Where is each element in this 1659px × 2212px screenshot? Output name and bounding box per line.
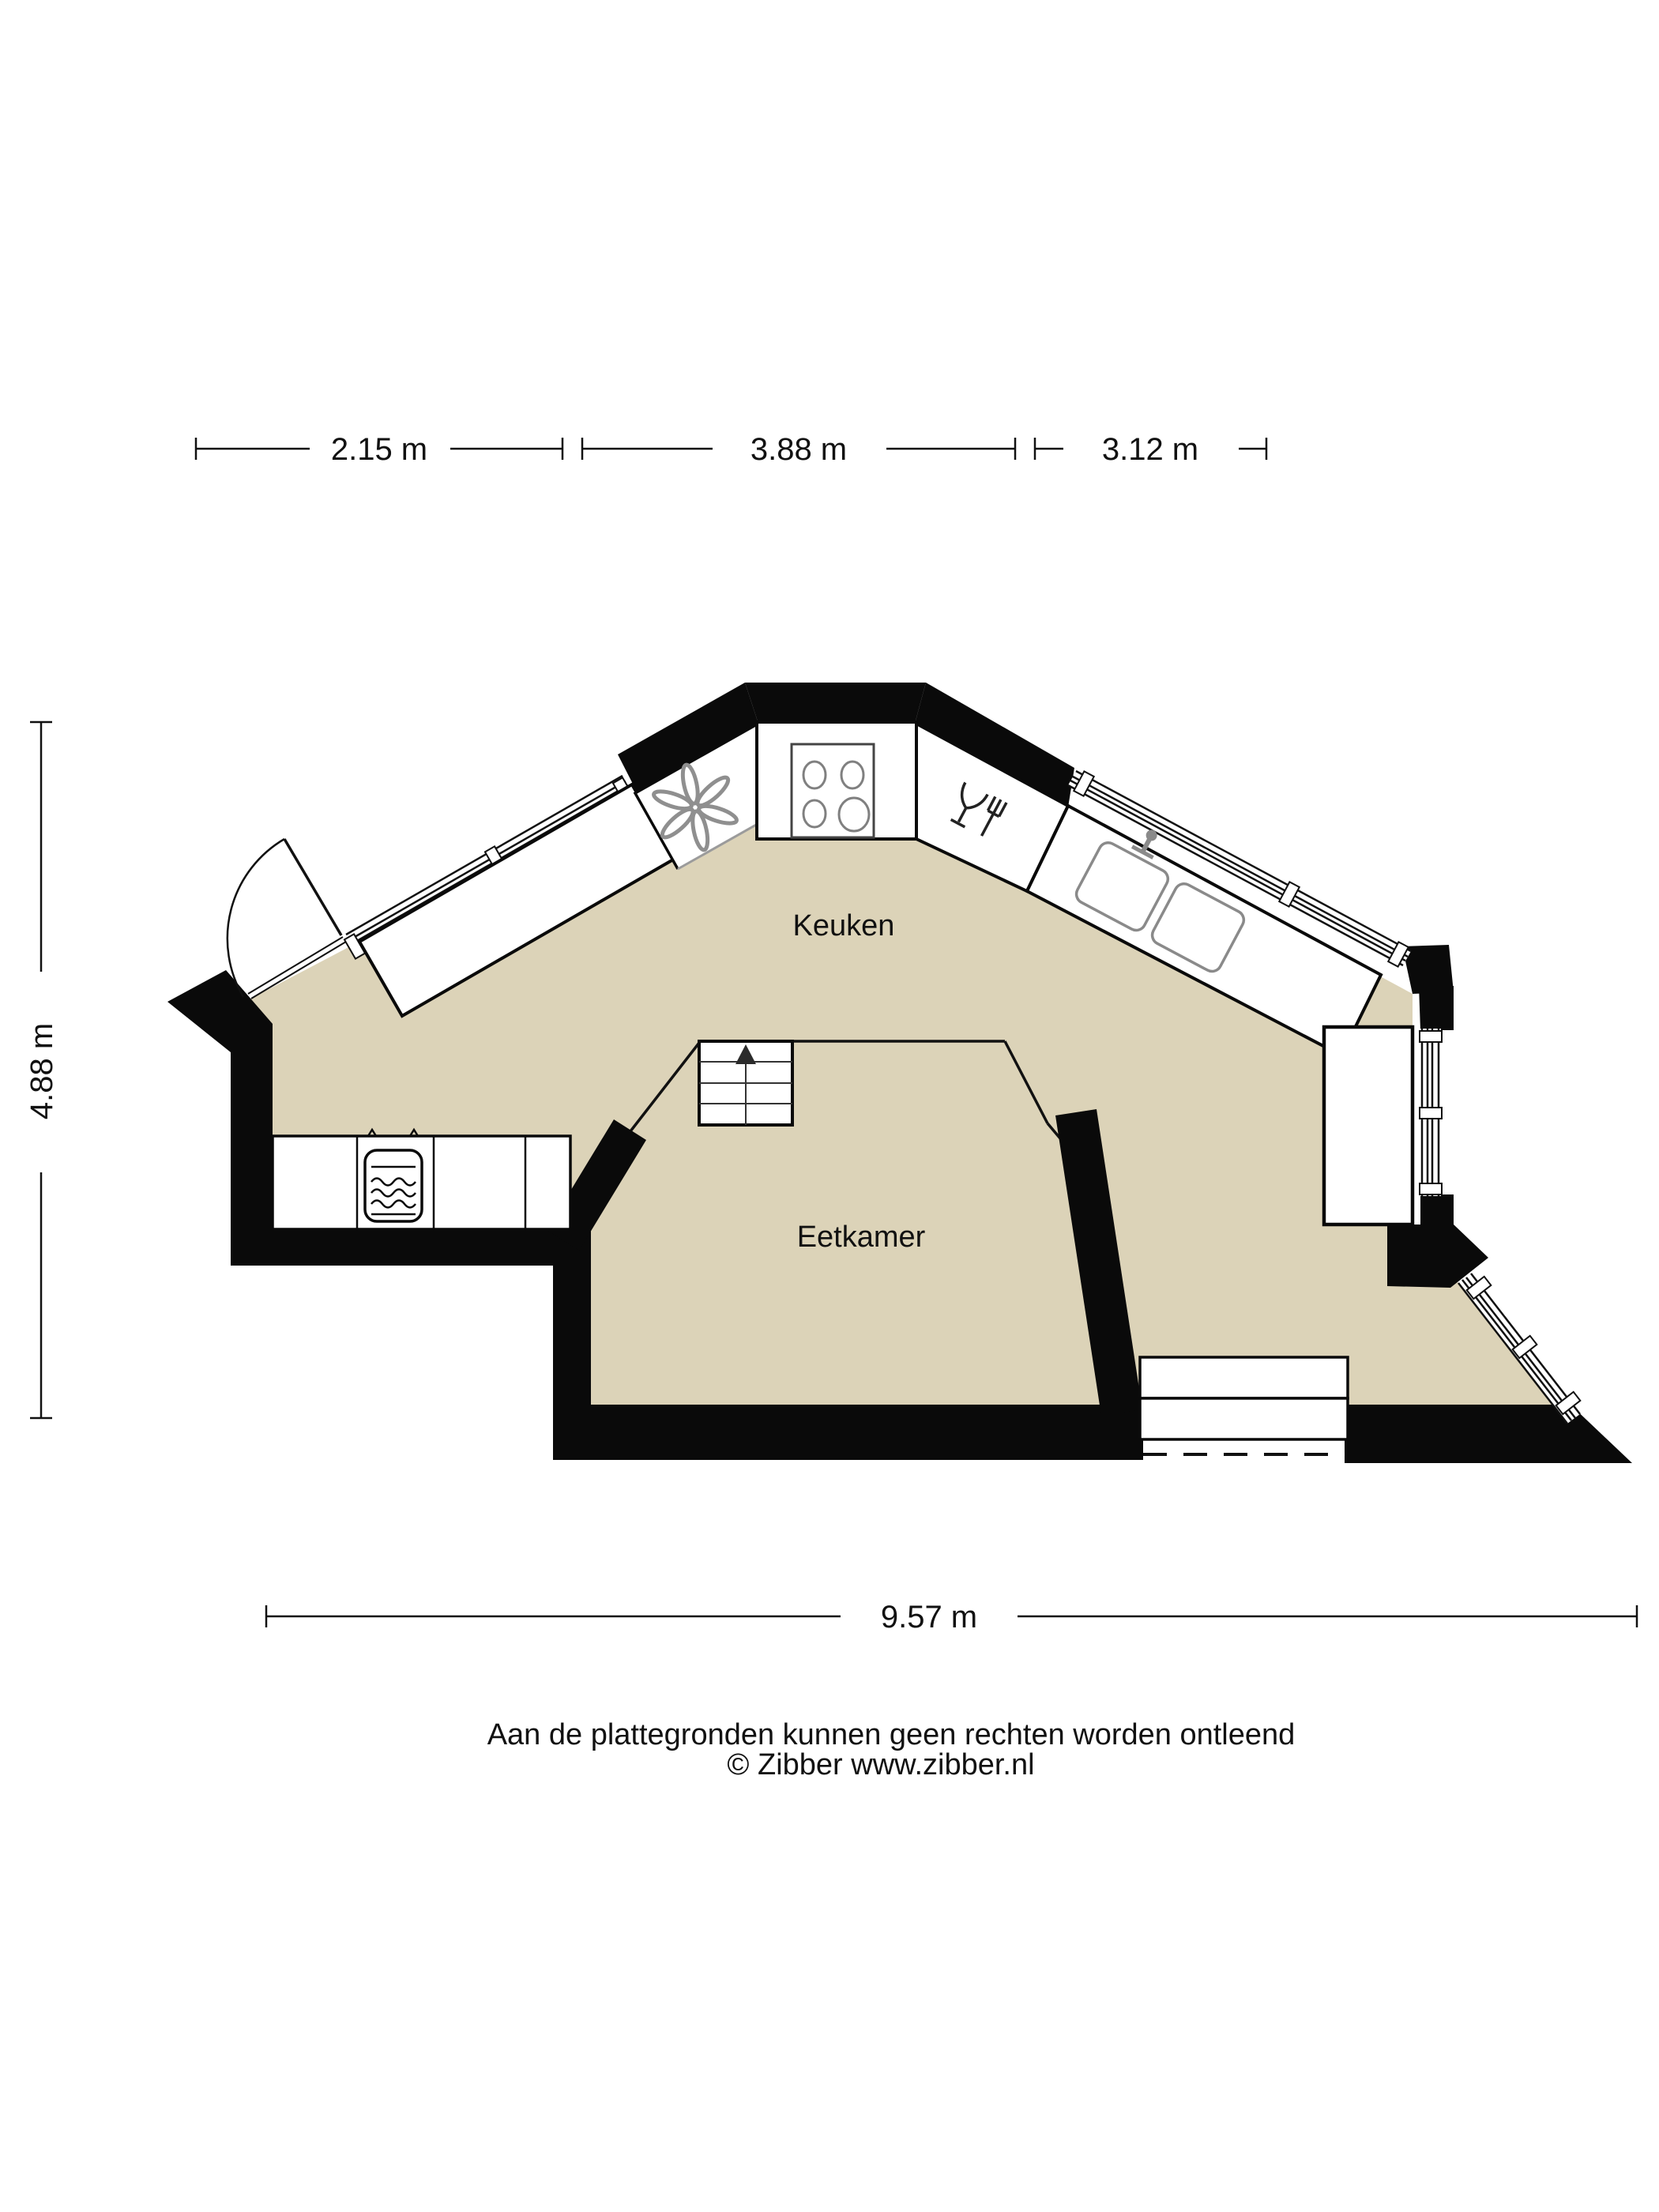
entry-steps (1140, 1357, 1348, 1454)
dimension-label-bottom: 9.57 m (881, 1600, 977, 1635)
wall-top (745, 683, 926, 724)
window-mullion (1420, 1108, 1442, 1119)
microwave-icon (365, 1150, 422, 1221)
footer-disclaimer: Aan de plattegronden kunnen geen rechten… (487, 1718, 1296, 1751)
dimension-label-left: 4.88 m (24, 1023, 59, 1119)
window-mullion (1420, 1183, 1442, 1194)
tall-cabinet (1324, 1027, 1413, 1224)
wall-right-upper (1419, 986, 1454, 1030)
dimension-label-top-2: 3.88 m (750, 432, 847, 467)
dimension-label-top-1: 2.15 m (331, 432, 427, 467)
microwave-counter (273, 1130, 570, 1229)
footer-copyright: © Zibber www.zibber.nl (727, 1748, 1034, 1781)
stove-icon (792, 744, 874, 837)
wall-bottom-left (553, 1405, 1143, 1460)
floorplan-canvas: Keuken Eetkamer 2.15 m 3.88 m 3.12 m 9.5… (0, 0, 1659, 2212)
dimension-label-top-3: 3.12 m (1102, 432, 1198, 467)
stove-unit (757, 722, 916, 839)
window-mullion (1420, 1031, 1442, 1042)
wall-nook-bottom (231, 1226, 591, 1266)
window-right (1420, 1029, 1442, 1196)
wall-right-lower (1420, 1194, 1454, 1226)
room-label-kitchen: Keuken (793, 909, 895, 942)
room-label-dining: Eetkamer (797, 1221, 926, 1254)
stairs (699, 1041, 792, 1125)
